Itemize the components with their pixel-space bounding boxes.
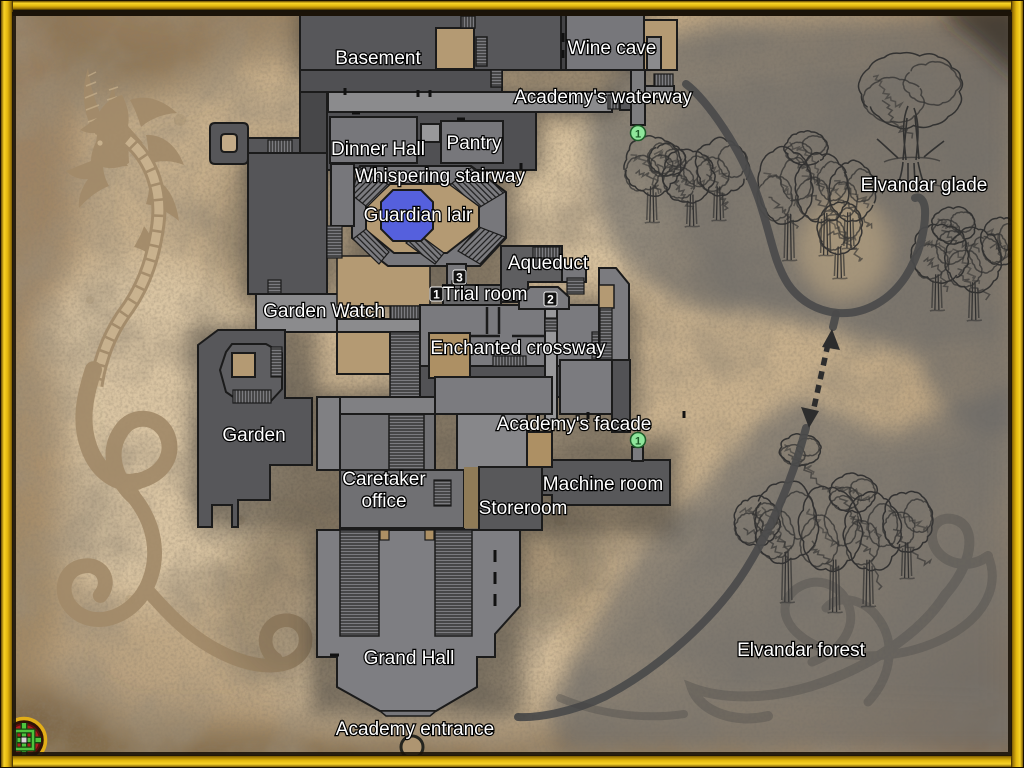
svg-text:Dinner Hall: Dinner Hall bbox=[331, 139, 425, 160]
svg-text:Academy's waterway: Academy's waterway bbox=[514, 87, 692, 108]
svg-text:1: 1 bbox=[635, 436, 641, 448]
svg-text:2: 2 bbox=[547, 293, 554, 307]
svg-text:Garden Watch: Garden Watch bbox=[263, 301, 385, 322]
svg-text:Guardian lair: Guardian lair bbox=[364, 205, 473, 226]
svg-text:Caretaker: Caretaker bbox=[342, 469, 426, 490]
svg-text:Basement: Basement bbox=[335, 48, 421, 69]
svg-text:Grand Hall: Grand Hall bbox=[364, 648, 455, 669]
svg-text:Aqueduct: Aqueduct bbox=[508, 253, 589, 274]
svg-text:office: office bbox=[361, 491, 406, 512]
svg-text:3: 3 bbox=[456, 271, 463, 285]
svg-text:Storeroom: Storeroom bbox=[479, 498, 568, 519]
svg-text:Elvandar forest: Elvandar forest bbox=[737, 640, 866, 661]
svg-text:Enchanted crossway: Enchanted crossway bbox=[430, 338, 606, 359]
svg-text:Pantry: Pantry bbox=[447, 133, 502, 154]
svg-text:1: 1 bbox=[433, 288, 440, 302]
svg-text:Academy entrance: Academy entrance bbox=[336, 719, 494, 740]
svg-text:Garden: Garden bbox=[222, 425, 285, 446]
svg-text:Elvandar glade: Elvandar glade bbox=[861, 175, 988, 196]
svg-text:Academy's facade: Academy's facade bbox=[497, 414, 652, 435]
svg-text:Whispering stairway: Whispering stairway bbox=[355, 166, 525, 187]
svg-text:Machine room: Machine room bbox=[543, 474, 663, 495]
svg-text:Trial room: Trial room bbox=[443, 284, 528, 305]
svg-text:1: 1 bbox=[635, 129, 641, 141]
svg-text:Wine cave: Wine cave bbox=[568, 38, 657, 59]
